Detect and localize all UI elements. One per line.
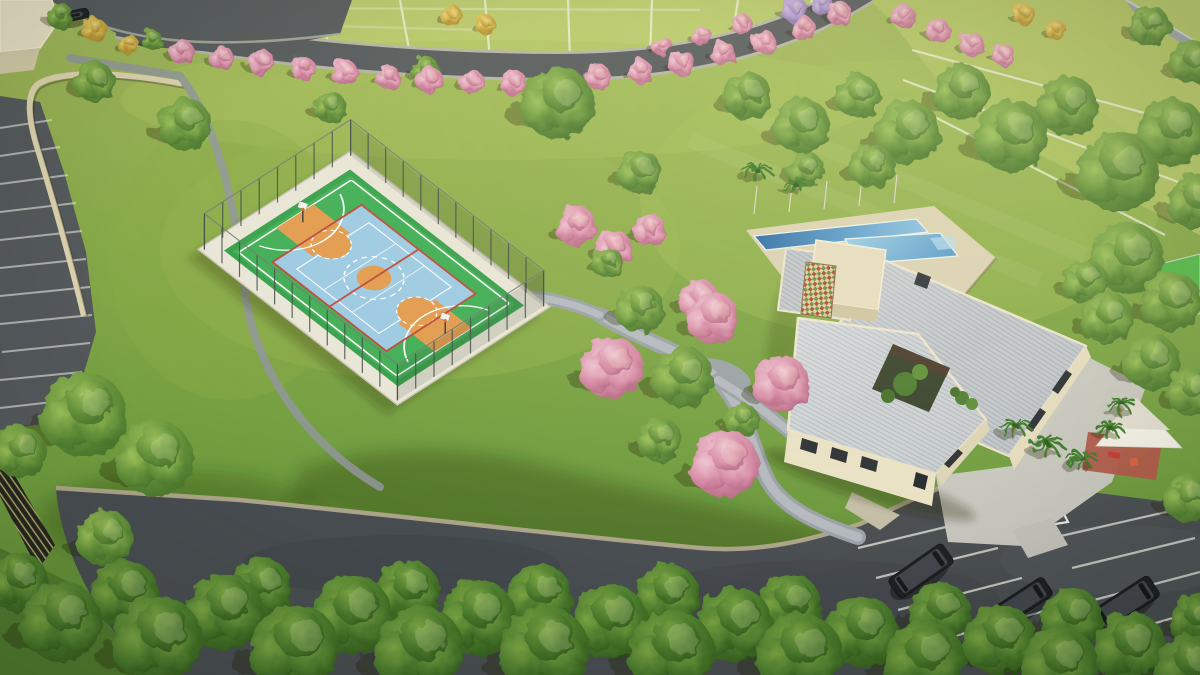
atmosphere-layer bbox=[0, 0, 1200, 675]
aerial-render: CARGA E DESCARGA bbox=[0, 0, 1200, 675]
